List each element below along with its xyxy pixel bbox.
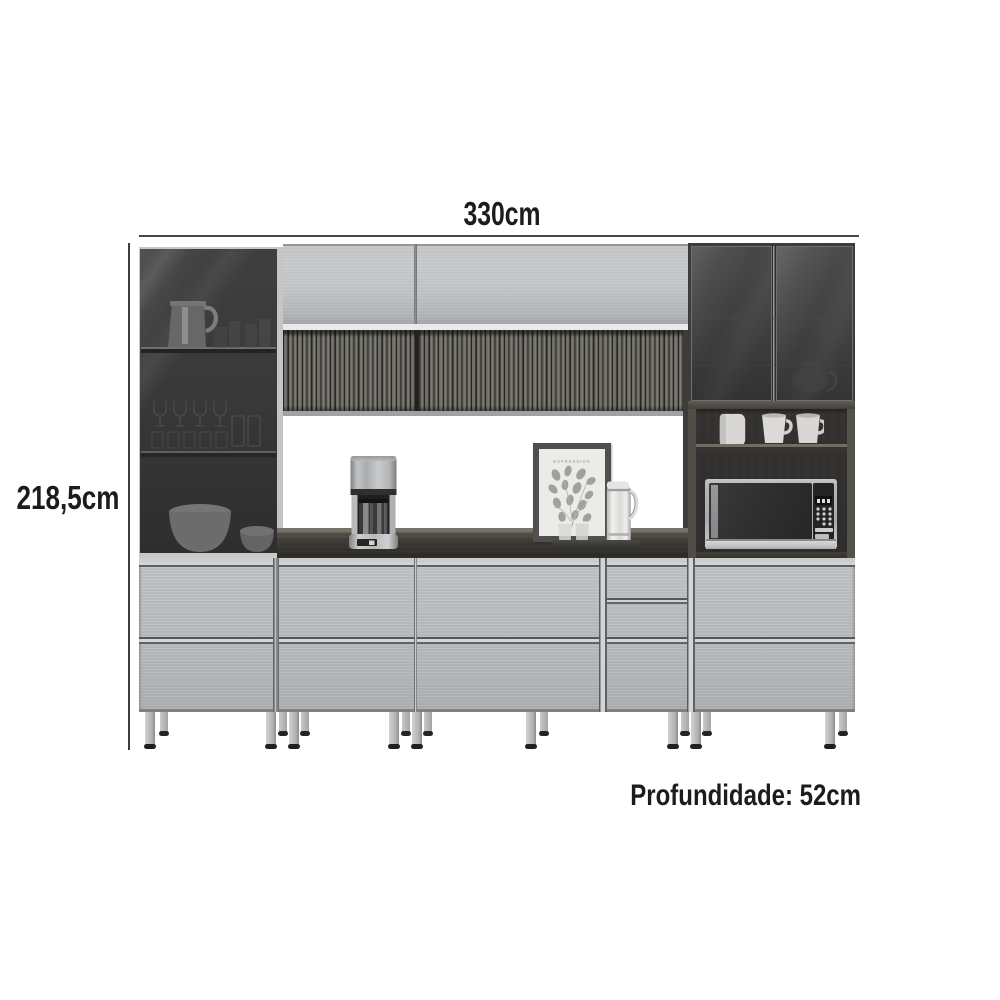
svg-text:EXPRESSION: EXPRESSION xyxy=(553,459,590,464)
